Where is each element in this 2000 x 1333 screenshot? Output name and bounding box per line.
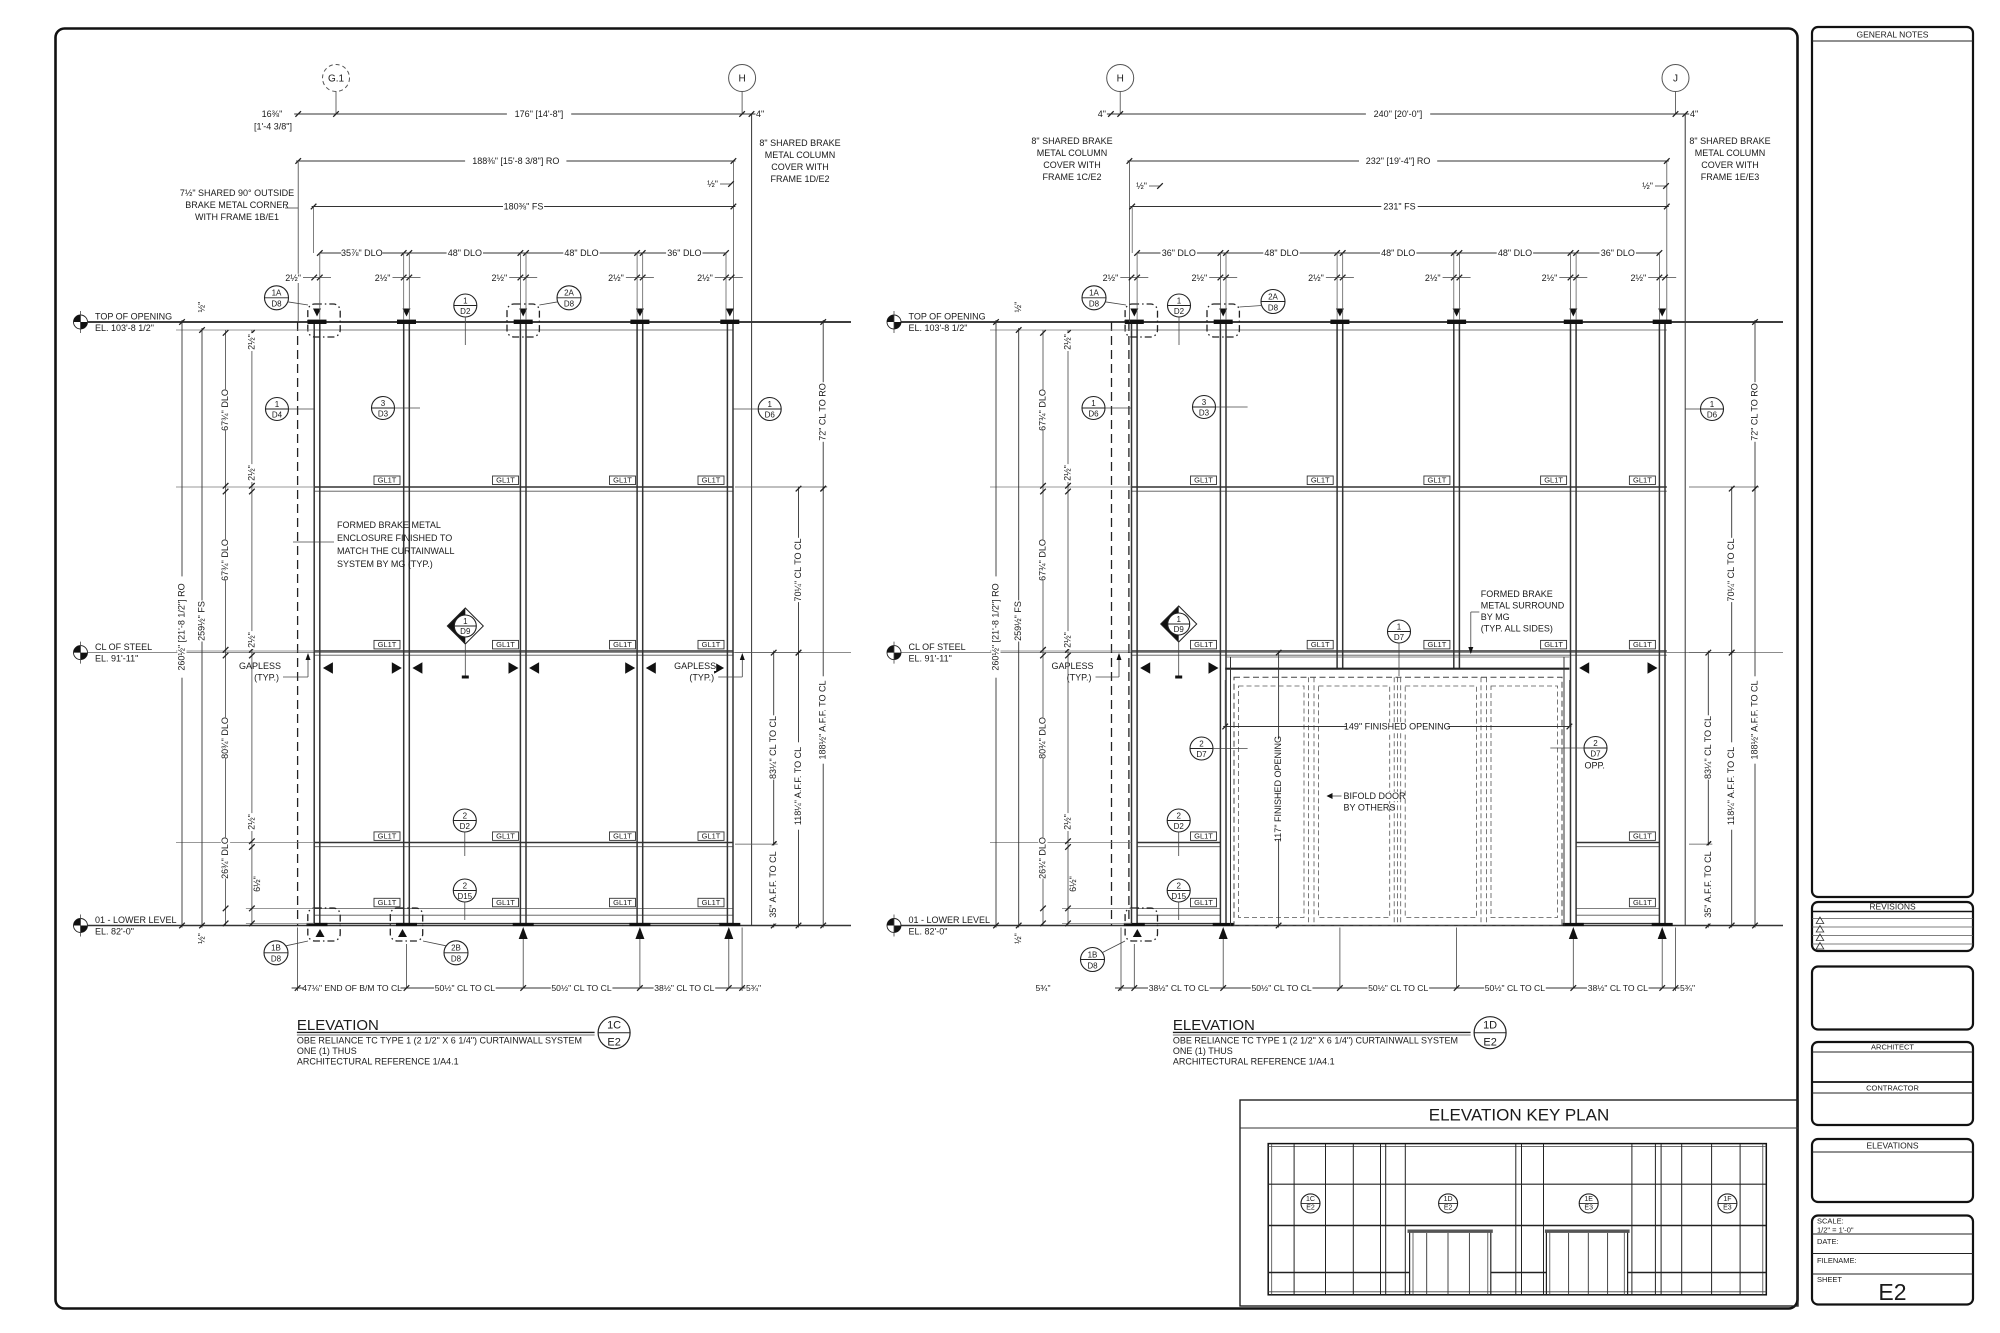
svg-text:E2: E2 [607,1037,620,1049]
svg-text:EL. 91'-11": EL. 91'-11" [909,654,952,664]
svg-text:8" SHARED BRAKE: 8" SHARED BRAKE [759,138,840,148]
svg-text:2½": 2½" [1630,273,1646,283]
svg-text:80¾" DLO: 80¾" DLO [1038,717,1048,759]
svg-text:5¾": 5¾" [1680,983,1695,993]
svg-text:D9: D9 [460,627,471,636]
svg-text:COVER WITH: COVER WITH [1043,160,1101,170]
svg-text:3: 3 [381,399,386,408]
svg-text:GL1T: GL1T [1194,832,1213,841]
svg-text:EL. 103'-8 1/2": EL. 103'-8 1/2" [95,323,154,333]
svg-text:2: 2 [463,811,468,820]
svg-text:D6: D6 [765,410,776,419]
svg-text:E2: E2 [1483,1037,1496,1049]
svg-text:GL1T: GL1T [702,476,721,485]
svg-text:1: 1 [1397,622,1402,631]
svg-text:MATCH THE CURTAINWALL: MATCH THE CURTAINWALL [337,546,455,556]
svg-text:BRAKE METAL CORNER: BRAKE METAL CORNER [185,200,289,210]
svg-text:1D: 1D [1444,1196,1453,1203]
svg-text:70¼" CL TO CL: 70¼" CL TO CL [1726,538,1736,601]
svg-text:50½" CL TO CL: 50½" CL TO CL [1251,983,1311,993]
svg-text:149" FINISHED OPENING: 149" FINISHED OPENING [1344,722,1451,732]
svg-text:231" FS: 231" FS [1383,202,1415,212]
svg-text:2½": 2½" [1063,465,1073,481]
svg-text:½": ½" [197,933,207,944]
svg-text:FRAME 1E/E3: FRAME 1E/E3 [1701,172,1760,182]
svg-text:D6: D6 [1088,409,1099,418]
svg-text:D8: D8 [1089,300,1100,309]
svg-text:50½" CL TO CL: 50½" CL TO CL [551,983,611,993]
svg-text:2: 2 [463,881,468,890]
svg-text:(TYP.): (TYP.) [1067,673,1092,683]
svg-text:50½" CL TO CL: 50½" CL TO CL [1368,983,1428,993]
svg-text:GL1T: GL1T [1194,898,1213,907]
svg-text:METAL SURROUND: METAL SURROUND [1481,601,1565,611]
svg-text:GL1T: GL1T [613,832,632,841]
svg-text:D7: D7 [1196,750,1207,759]
svg-text:2½": 2½" [246,334,256,350]
svg-text:2½": 2½" [491,273,507,283]
svg-text:2½": 2½" [1425,273,1441,283]
svg-text:232" [19'-4"] RO: 232" [19'-4"] RO [1366,156,1431,166]
svg-text:D7: D7 [1590,749,1601,758]
svg-text:2½": 2½" [246,632,256,648]
svg-text:ELEVATION: ELEVATION [297,1017,379,1034]
svg-text:D15: D15 [1171,892,1186,901]
svg-text:180⅜" FS: 180⅜" FS [504,202,544,212]
svg-text:GL1T: GL1T [1428,640,1447,649]
svg-text:J: J [1673,74,1678,85]
svg-text:GL1T: GL1T [702,832,721,841]
svg-text:2A: 2A [564,289,574,298]
svg-text:1: 1 [1176,615,1181,624]
svg-text:1A: 1A [272,289,282,298]
svg-text:2½": 2½" [1063,814,1073,830]
svg-text:D3: D3 [378,409,389,418]
svg-text:70¼" CL TO CL: 70¼" CL TO CL [793,538,803,601]
svg-text:REVISIONS: REVISIONS [1869,902,1916,912]
svg-text:259½" FS: 259½" FS [197,601,207,641]
svg-text:188⅜" [15'-8 3/8"] RO: 188⅜" [15'-8 3/8"] RO [472,156,559,166]
svg-text:2½": 2½" [1308,273,1324,283]
svg-text:47⅛" END OF B/M TO CL: 47⅛" END OF B/M TO CL [302,983,402,993]
svg-text:WITH FRAME 1B/E1: WITH FRAME 1B/E1 [195,212,279,222]
svg-text:48" DLO: 48" DLO [1498,248,1532,258]
svg-text:(TYP.): (TYP.) [254,673,279,683]
svg-text:35⅞" DLO: 35⅞" DLO [341,248,383,258]
svg-text:2: 2 [1593,739,1598,748]
svg-text:2: 2 [1176,811,1181,820]
svg-text:D8: D8 [1087,961,1098,970]
svg-text:FILENAME:: FILENAME: [1817,1256,1857,1265]
svg-text:METAL COLUMN: METAL COLUMN [1037,148,1108,158]
svg-text:01 - LOWER LEVEL: 01 - LOWER LEVEL [909,915,991,925]
svg-text:35" A.F.F. TO CL: 35" A.F.F. TO CL [1703,851,1713,917]
svg-text:BIFOLD DOOR: BIFOLD DOOR [1344,791,1407,801]
svg-text:67¾" DLO: 67¾" DLO [220,389,230,431]
svg-text:½": ½" [1013,302,1023,313]
svg-text:1: 1 [1710,400,1715,409]
svg-text:GL1T: GL1T [378,898,397,907]
svg-text:D8: D8 [451,955,462,964]
svg-text:2½": 2½" [285,273,301,283]
svg-text:6½": 6½" [1068,876,1078,892]
svg-text:2: 2 [1176,881,1181,890]
svg-text:GL1T: GL1T [378,476,397,485]
svg-text:GL1T: GL1T [1633,832,1652,841]
svg-text:COVER WITH: COVER WITH [1701,160,1759,170]
svg-text:16⅜": 16⅜" [262,109,283,119]
svg-text:GAPLESS: GAPLESS [239,661,281,671]
svg-text:35" A.F.F. TO CL: 35" A.F.F. TO CL [768,851,778,917]
svg-text:GL1T: GL1T [378,832,397,841]
svg-text:CONTRACTOR: CONTRACTOR [1866,1084,1919,1093]
svg-text:GL1T: GL1T [1428,476,1447,485]
svg-text:½": ½" [707,179,718,189]
svg-text:GL1T: GL1T [1633,640,1652,649]
svg-text:½": ½" [1013,933,1023,944]
svg-text:CL OF STEEL: CL OF STEEL [909,642,966,652]
svg-text:5¾": 5¾" [746,983,761,993]
svg-text:1E: 1E [1584,1196,1593,1203]
svg-text:4": 4" [1690,109,1698,119]
svg-text:188½" A.F.F. TO CL: 188½" A.F.F. TO CL [1750,681,1760,760]
svg-text:36" DLO: 36" DLO [1162,248,1196,258]
svg-text:GL1T: GL1T [496,832,515,841]
svg-text:ARCHITECTURAL REFERENCE 1/A4.1: ARCHITECTURAL REFERENCE 1/A4.1 [1173,1057,1335,1067]
svg-text:D6: D6 [1707,410,1718,419]
svg-text:ELEVATION KEY PLAN: ELEVATION KEY PLAN [1429,1106,1609,1125]
svg-text:GL1T: GL1T [1633,898,1652,907]
svg-text:176" [14'-8"]: 176" [14'-8"] [515,109,564,119]
svg-text:E3: E3 [1584,1205,1593,1212]
svg-text:36" DLO: 36" DLO [667,248,701,258]
svg-text:36" DLO: 36" DLO [1601,248,1635,258]
svg-text:D15: D15 [457,892,472,901]
svg-text:48" DLO: 48" DLO [564,248,598,258]
svg-text:BY MG: BY MG [1481,612,1510,622]
svg-text:E2: E2 [1878,1279,1906,1305]
svg-text:D8: D8 [564,300,575,309]
svg-text:240" [20'-0"]: 240" [20'-0"] [1374,109,1423,119]
svg-text:48" DLO: 48" DLO [1381,248,1415,258]
svg-text:83¼" CL TO CL: 83¼" CL TO CL [1703,716,1713,779]
svg-text:2½": 2½" [375,273,391,283]
svg-text:2B: 2B [451,944,461,953]
svg-text:D3: D3 [1199,408,1210,417]
svg-text:26¾" DLO: 26¾" DLO [1038,837,1048,879]
svg-text:TOP OF OPENING: TOP OF OPENING [95,311,172,321]
svg-text:1: 1 [463,617,468,626]
svg-text:01 - LOWER LEVEL: 01 - LOWER LEVEL [95,915,177,925]
svg-text:D2: D2 [460,307,471,316]
svg-text:½": ½" [1136,181,1147,191]
svg-text:D7: D7 [1394,633,1405,642]
svg-text:EL. 82'-0": EL. 82'-0" [909,926,948,936]
svg-text:GL1T: GL1T [613,640,632,649]
svg-text:1A: 1A [1089,289,1099,298]
svg-text:FORMED BRAKE: FORMED BRAKE [1481,589,1553,599]
svg-text:GAPLESS: GAPLESS [1051,661,1093,671]
svg-text:D8: D8 [271,300,282,309]
svg-text:GL1T: GL1T [1311,476,1330,485]
svg-text:1/2" = 1'-0": 1/2" = 1'-0" [1817,1226,1854,1235]
svg-text:D8: D8 [271,955,282,964]
svg-text:E2: E2 [1444,1205,1453,1212]
svg-text:ONE (1) THUS: ONE (1) THUS [1173,1046,1233,1056]
svg-text:259½" FS: 259½" FS [1013,601,1023,641]
svg-text:ARCHITECTURAL REFERENCE 1/A4.1: ARCHITECTURAL REFERENCE 1/A4.1 [297,1057,459,1067]
svg-text:1: 1 [1091,399,1096,408]
svg-text:1D: 1D [1483,1020,1497,1032]
svg-text:OPP.: OPP. [1585,761,1605,771]
svg-text:1C: 1C [1306,1196,1315,1203]
svg-text:4": 4" [1098,109,1106,119]
svg-text:GL1T: GL1T [378,640,397,649]
svg-text:GL1T: GL1T [613,476,632,485]
svg-text:1: 1 [1177,296,1182,305]
svg-text:E2: E2 [1306,1205,1315,1212]
svg-text:SHEET: SHEET [1817,1275,1842,1284]
svg-text:1F: 1F [1723,1196,1731,1203]
svg-text:2½": 2½" [1063,632,1073,648]
svg-text:GL1T: GL1T [1194,640,1213,649]
svg-text:OBE RELIANCE TC TYPE 1 (2 1/2": OBE RELIANCE TC TYPE 1 (2 1/2" X 6 1/4")… [1173,1036,1458,1046]
svg-text:COVER WITH: COVER WITH [771,162,829,172]
svg-text:GL1T: GL1T [1633,476,1652,485]
svg-text:50½" CL TO CL: 50½" CL TO CL [1485,983,1545,993]
svg-text:48" DLO: 48" DLO [1264,248,1298,258]
svg-text:6½": 6½" [252,876,262,892]
svg-text:1C: 1C [607,1020,621,1032]
svg-text:5¾": 5¾" [1036,983,1051,993]
svg-text:117" FINISHED OPENING: 117" FINISHED OPENING [1273,736,1283,842]
svg-text:GL1T: GL1T [496,640,515,649]
svg-text:CL OF STEEL: CL OF STEEL [95,642,152,652]
svg-text:3: 3 [1202,398,1207,407]
svg-text:D2: D2 [460,822,471,831]
svg-text:½": ½" [1642,181,1653,191]
svg-text:7½" SHARED 90° OUTSIDE: 7½" SHARED 90° OUTSIDE [180,188,294,198]
svg-text:D4: D4 [272,410,283,419]
svg-text:D2: D2 [1174,307,1185,316]
svg-text:GAPLESS: GAPLESS [674,661,716,671]
svg-text:26¾" DLO: 26¾" DLO [220,837,230,879]
svg-text:D8: D8 [1268,303,1279,312]
svg-text:72" CL TO RO: 72" CL TO RO [818,383,828,441]
svg-text:BY OTHERS: BY OTHERS [1344,803,1396,813]
svg-text:[1'-4 3/8"]: [1'-4 3/8"] [254,122,292,132]
svg-text:GENERAL NOTES: GENERAL NOTES [1857,30,1929,40]
svg-text:ELEVATIONS: ELEVATIONS [1866,1141,1918,1151]
svg-text:GL1T: GL1T [702,640,721,649]
svg-text:ONE (1) THUS: ONE (1) THUS [297,1046,357,1056]
svg-text:2½": 2½" [246,814,256,830]
svg-text:48" DLO: 48" DLO [448,248,482,258]
svg-text:2½": 2½" [1542,273,1558,283]
svg-text:FRAME 1C/E2: FRAME 1C/E2 [1042,172,1101,182]
svg-text:188½" A.F.F. TO CL: 188½" A.F.F. TO CL [818,681,828,760]
svg-text:H: H [1117,74,1124,85]
svg-text:2½": 2½" [1191,273,1207,283]
svg-text:GL1T: GL1T [1544,476,1563,485]
svg-text:D2: D2 [1174,822,1185,831]
svg-text:1B: 1B [271,944,281,953]
svg-text:GL1T: GL1T [496,898,515,907]
svg-text:E3: E3 [1723,1205,1732,1212]
svg-text:½": ½" [197,302,207,313]
svg-text:2½": 2½" [1103,273,1119,283]
svg-text:4": 4" [756,109,764,119]
svg-text:FRAME 1D/E2: FRAME 1D/E2 [770,174,829,184]
svg-text:8" SHARED BRAKE: 8" SHARED BRAKE [1031,136,1112,146]
svg-text:EL. 91'-11": EL. 91'-11" [95,654,138,664]
svg-text:118¼" A.F.F. TO CL: 118¼" A.F.F. TO CL [1726,747,1736,825]
svg-text:1B: 1B [1088,950,1098,959]
svg-text:SCALE:: SCALE: [1817,1217,1844,1226]
svg-text:GL1T: GL1T [702,898,721,907]
svg-text:118¼" A.F.F. TO CL: 118¼" A.F.F. TO CL [793,747,803,825]
svg-text:TOP OF OPENING: TOP OF OPENING [909,311,986,321]
svg-text:GL1T: GL1T [613,898,632,907]
svg-text:METAL COLUMN: METAL COLUMN [1695,148,1766,158]
svg-text:ARCHITECT: ARCHITECT [1871,1043,1914,1052]
svg-text:FORMED BRAKE METAL: FORMED BRAKE METAL [337,520,441,530]
svg-text:ENCLOSURE FINISHED TO: ENCLOSURE FINISHED TO [337,533,452,543]
svg-text:D9: D9 [1174,625,1185,634]
svg-text:2: 2 [1199,739,1204,748]
svg-text:GL1T: GL1T [496,476,515,485]
svg-text:G.1: G.1 [328,74,345,85]
svg-text:2½": 2½" [1063,334,1073,350]
svg-text:GL1T: GL1T [1194,476,1213,485]
svg-text:2½": 2½" [246,465,256,481]
svg-text:(TYP.): (TYP.) [689,673,714,683]
svg-text:DATE:: DATE: [1817,1237,1839,1246]
svg-text:SYSTEM BY MG (TYP.): SYSTEM BY MG (TYP.) [337,559,433,569]
svg-text:50½" CL TO CL: 50½" CL TO CL [435,983,495,993]
svg-text:67¾" DLO: 67¾" DLO [1038,539,1048,581]
svg-text:1: 1 [275,400,280,409]
svg-text:80¾" DLO: 80¾" DLO [220,717,230,759]
svg-text:(TYP. ALL SIDES): (TYP. ALL SIDES) [1481,624,1553,634]
svg-text:2½": 2½" [697,273,713,283]
svg-text:H: H [738,74,745,85]
svg-text:2A: 2A [1268,292,1278,301]
svg-text:67¾" DLO: 67¾" DLO [220,539,230,581]
svg-text:38½" CL TO CL: 38½" CL TO CL [654,983,714,993]
svg-text:260½" [21'-8 1/2"] RO: 260½" [21'-8 1/2"] RO [177,583,187,670]
svg-text:1: 1 [767,400,772,409]
svg-text:EL. 82'-0": EL. 82'-0" [95,926,134,936]
svg-text:1: 1 [463,296,468,305]
svg-text:38½" CL TO CL: 38½" CL TO CL [1588,983,1648,993]
svg-text:8" SHARED BRAKE: 8" SHARED BRAKE [1689,136,1770,146]
svg-text:EL. 103'-8 1/2": EL. 103'-8 1/2" [909,323,968,333]
svg-text:2½": 2½" [608,273,624,283]
svg-text:OBE RELIANCE TC TYPE 1 (2 1/2": OBE RELIANCE TC TYPE 1 (2 1/2" X 6 1/4")… [297,1036,582,1046]
svg-text:260½" [21'-8 1/2"] RO: 260½" [21'-8 1/2"] RO [991,583,1001,670]
svg-text:GL1T: GL1T [1544,640,1563,649]
svg-text:38½" CL TO CL: 38½" CL TO CL [1149,983,1209,993]
svg-text:72" CL TO RO: 72" CL TO RO [1750,383,1760,441]
svg-text:67¾" DLO: 67¾" DLO [1038,389,1048,431]
svg-text:GL1T: GL1T [1311,640,1330,649]
svg-text:ELEVATION: ELEVATION [1173,1017,1255,1034]
svg-text:METAL COLUMN: METAL COLUMN [765,150,836,160]
svg-text:83¼" CL TO CL: 83¼" CL TO CL [768,716,778,779]
